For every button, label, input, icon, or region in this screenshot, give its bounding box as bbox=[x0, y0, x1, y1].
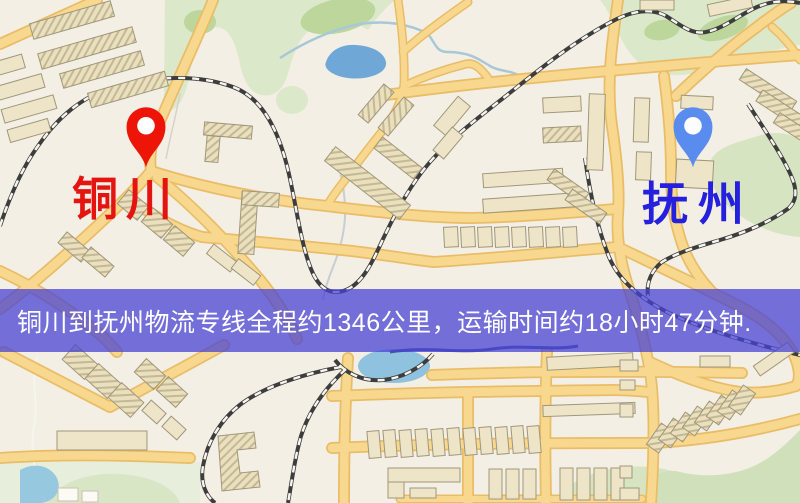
origin-pin-hole bbox=[137, 117, 155, 135]
destination-pin-icon bbox=[674, 107, 713, 167]
route-info-banner: 铜川到抚州物流专线全程约1346公里，运输时间约18小时47分钟. bbox=[0, 289, 800, 352]
route-info-text: 铜川到抚州物流专线全程约1346公里，运输时间约18小时47分钟. bbox=[17, 303, 752, 339]
destination-city-label: 抚州 bbox=[642, 181, 754, 227]
origin-pin-icon bbox=[127, 107, 166, 167]
map-art bbox=[0, 0, 800, 503]
destination-pin bbox=[668, 100, 718, 170]
destination-pin-hole bbox=[684, 117, 702, 135]
map-screenshot: 铜川 抚州 铜川到抚州物流专线全程约1346公里，运输时间约18小时47分钟. bbox=[0, 0, 800, 503]
origin-pin bbox=[121, 99, 171, 171]
origin-city-label: 铜川 bbox=[72, 176, 180, 222]
